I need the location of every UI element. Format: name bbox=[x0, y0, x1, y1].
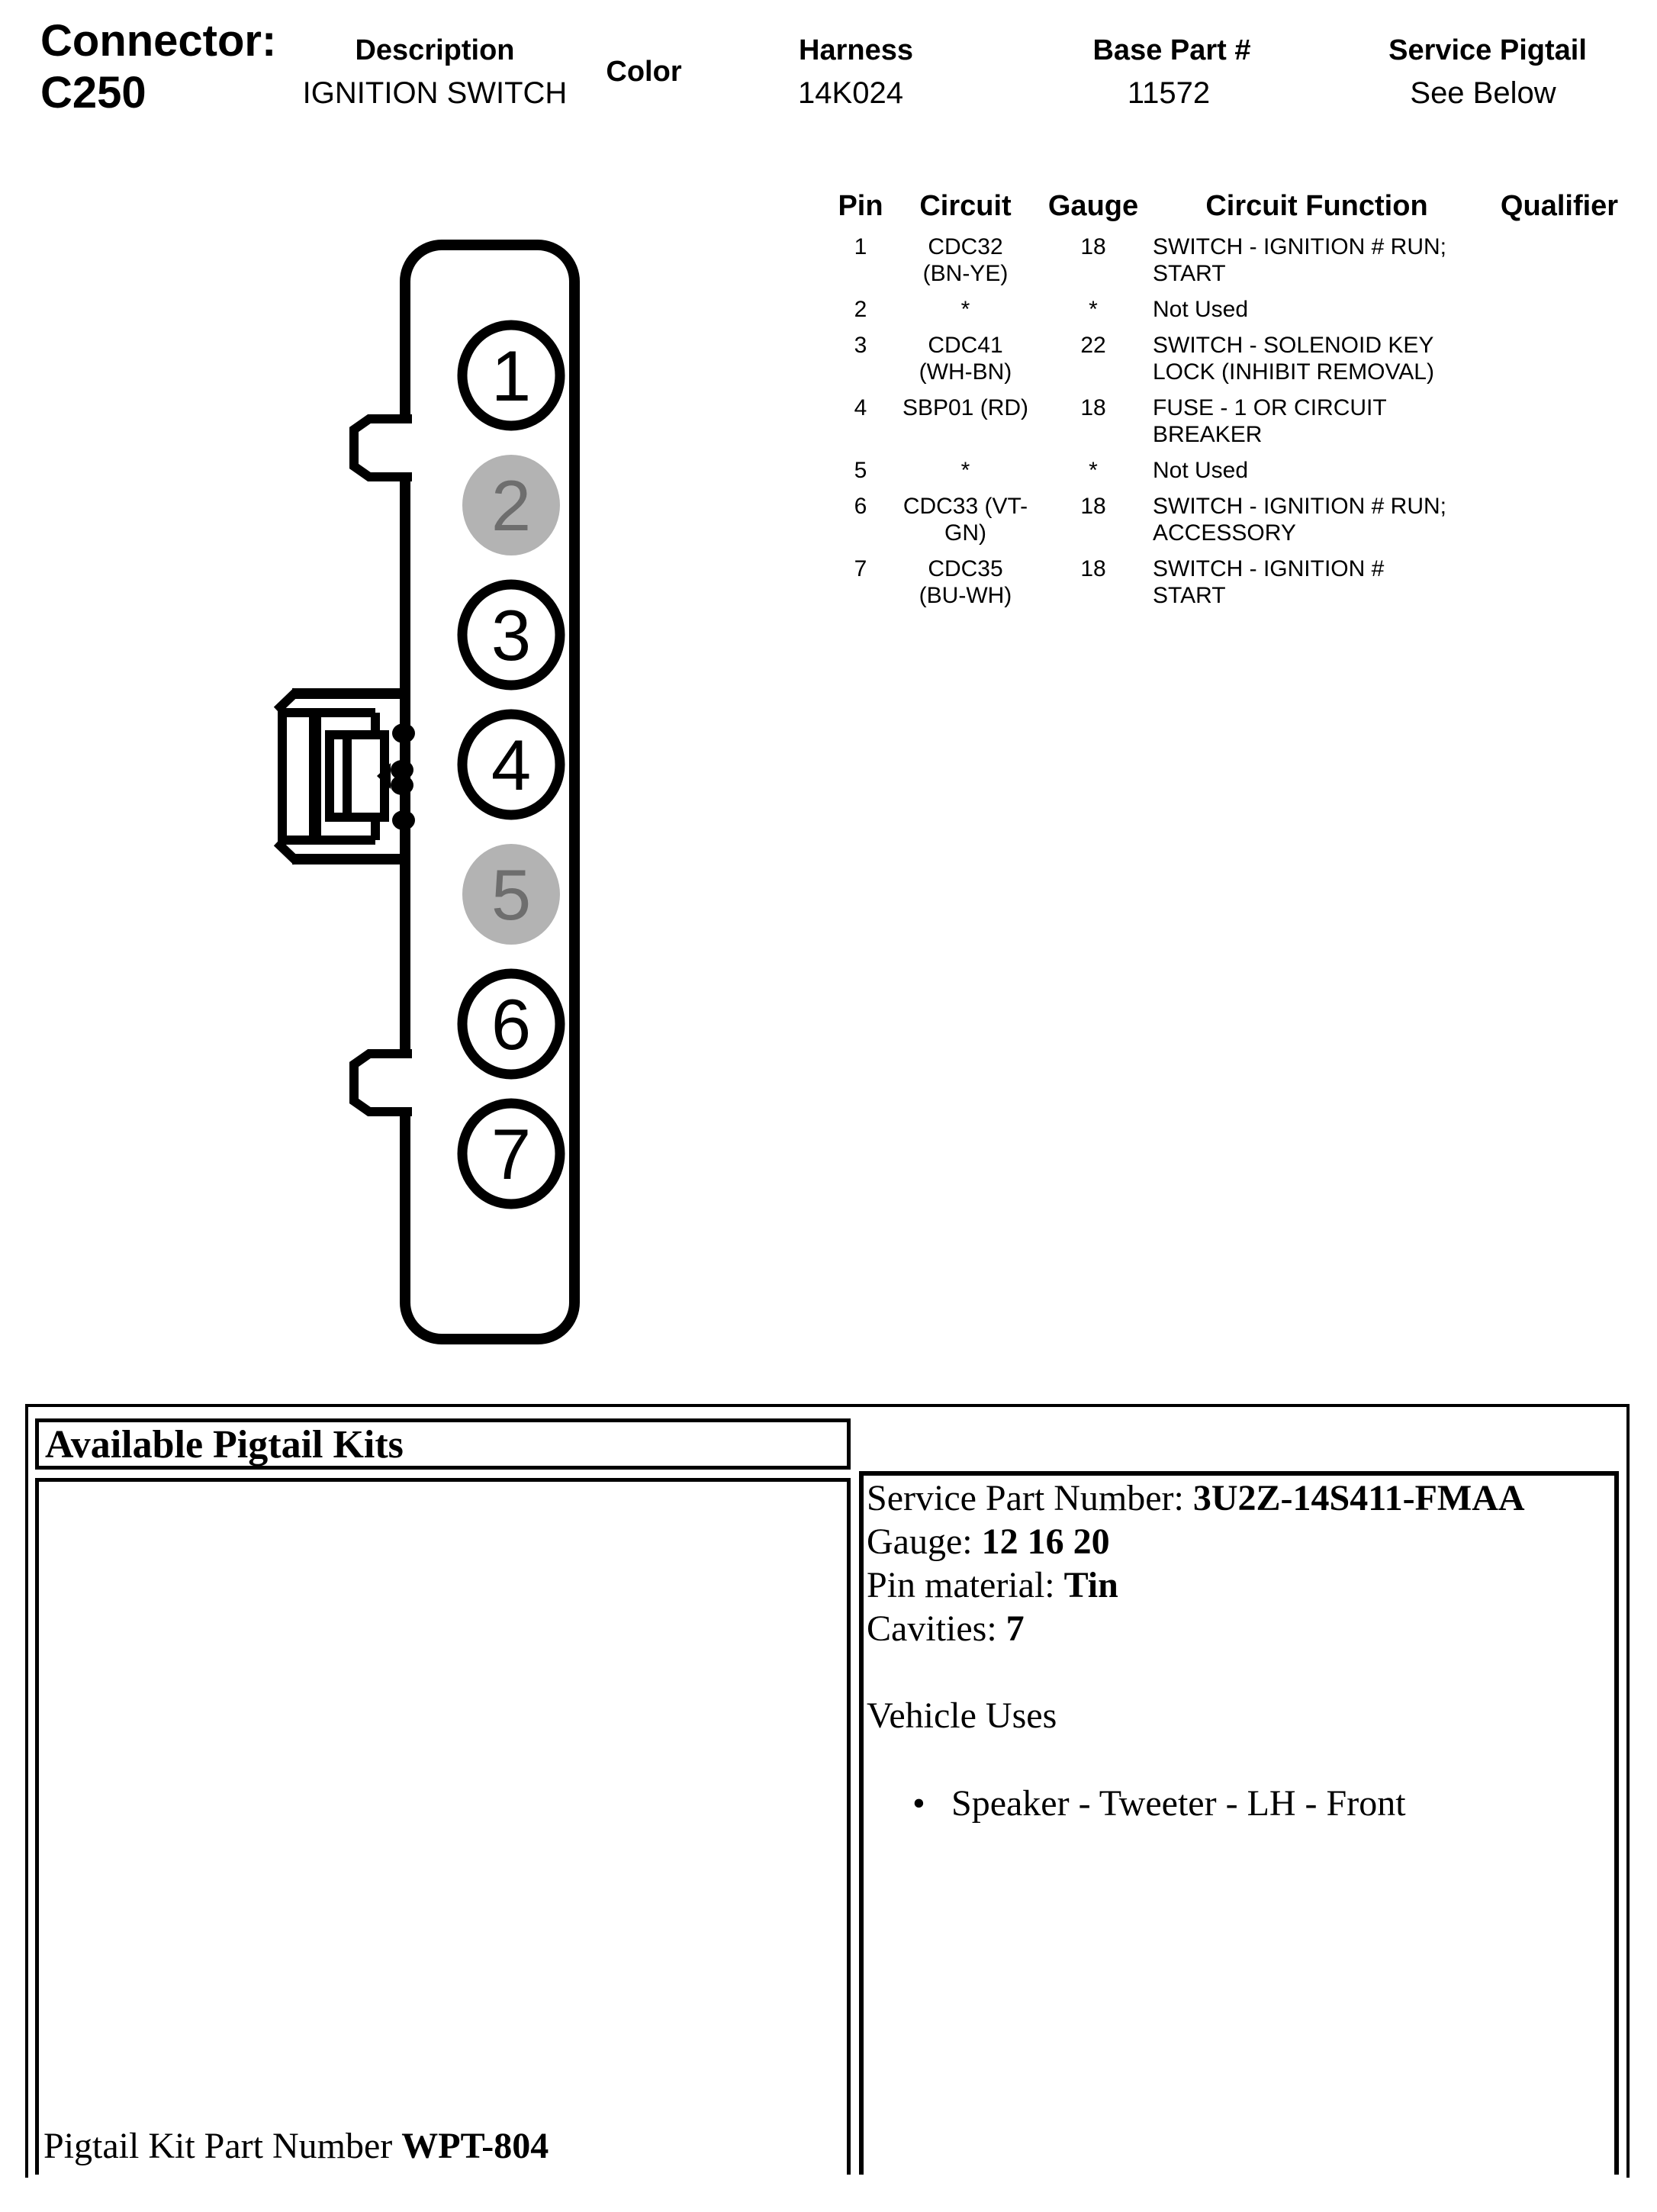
bullet-icon: • bbox=[912, 1782, 925, 1825]
service-part-details: Service Part Number: 3U2Z-14S411-FMAAGau… bbox=[867, 1476, 1614, 1650]
pin-table-header-row: PinCircuitGaugeCircuit FunctionQualifier bbox=[838, 189, 1624, 223]
qualifier-cell bbox=[1495, 296, 1624, 323]
service-detail-label: Pin material: bbox=[867, 1565, 1064, 1605]
circuit-function-cell: SWITCH - SOLENOID KEY LOCK (INHIBIT REMO… bbox=[1139, 332, 1495, 385]
pin-table-row: 1CDC32 (BN-YE)18SWITCH - IGNITION # RUN;… bbox=[838, 233, 1624, 287]
pin-cavity-3: 3 bbox=[462, 584, 560, 685]
service-detail-line: Pin material: Tin bbox=[867, 1563, 1614, 1607]
vehicle-use-text: Speaker - Tweeter - LH - Front bbox=[951, 1783, 1406, 1824]
circuit-function-cell: SWITCH - IGNITION # START bbox=[1139, 555, 1495, 609]
gauge-cell: * bbox=[1047, 457, 1139, 484]
header-col-label: Service Pigtail bbox=[1388, 34, 1587, 67]
pin-cavity-2: 2 bbox=[462, 455, 560, 555]
pin-table-body: 1CDC32 (BN-YE)18SWITCH - IGNITION # RUN;… bbox=[838, 233, 1624, 618]
circuit-cell: CDC35 (BU-WH) bbox=[883, 555, 1047, 609]
header-col-value: 14K024 bbox=[798, 76, 903, 111]
pin-cell: 6 bbox=[838, 493, 883, 546]
bracket-bump bbox=[392, 723, 415, 743]
latch-tab-bottom bbox=[354, 1054, 412, 1112]
circuit-function-cell: SWITCH - IGNITION # RUN; ACCESSORY bbox=[1139, 493, 1495, 546]
service-detail-line: Service Part Number: 3U2Z-14S411-FMAA bbox=[867, 1476, 1614, 1520]
qualifier-cell bbox=[1495, 457, 1624, 484]
pin-cell: 7 bbox=[838, 555, 883, 609]
gauge-cell: 18 bbox=[1047, 493, 1139, 546]
qualifier-cell bbox=[1495, 332, 1624, 385]
pin-number: 4 bbox=[491, 725, 531, 805]
circuit-cell: CDC41 (WH-BN) bbox=[883, 332, 1047, 385]
pin-cell: 5 bbox=[838, 457, 883, 484]
circuit-cell: * bbox=[883, 457, 1047, 484]
circuit-function-cell: SWITCH - IGNITION # RUN; START bbox=[1139, 233, 1495, 287]
pin-table-row: 2**Not Used bbox=[838, 296, 1624, 323]
header-col-label: Description bbox=[355, 34, 514, 67]
pigtail-kits-header-box: Available Pigtail Kits bbox=[35, 1418, 851, 1470]
pin-cavity-6: 6 bbox=[462, 974, 560, 1074]
vehicle-uses-title: Vehicle Uses bbox=[867, 1694, 1614, 1737]
pin-cavity-5: 5 bbox=[462, 844, 560, 945]
connector-label: Connector: bbox=[40, 15, 276, 67]
gauge-cell: 22 bbox=[1047, 332, 1139, 385]
header-col-value: See Below bbox=[1410, 76, 1556, 111]
pin-table-row: 7CDC35 (BU-WH)18SWITCH - IGNITION # STAR… bbox=[838, 555, 1624, 609]
circuit-function-cell: FUSE - 1 OR CIRCUIT BREAKER bbox=[1139, 394, 1495, 448]
service-detail-line: Cavities: 7 bbox=[867, 1607, 1614, 1650]
gauge-cell: 18 bbox=[1047, 555, 1139, 609]
connector-id: C250 bbox=[40, 67, 276, 119]
connector-title: Connector: C250 bbox=[40, 15, 276, 119]
qualifier-cell bbox=[1495, 555, 1624, 609]
gauge-cell: * bbox=[1047, 296, 1139, 323]
pin-number: 6 bbox=[491, 984, 531, 1064]
pin-cell: 1 bbox=[838, 233, 883, 287]
pin-table-header: Pin bbox=[838, 189, 883, 223]
qualifier-cell bbox=[1495, 493, 1624, 546]
pin-cavity-1: 1 bbox=[462, 325, 560, 426]
pin-table-header: Circuit Function bbox=[1139, 189, 1495, 223]
service-detail-value: Tin bbox=[1064, 1565, 1118, 1605]
gauge-cell: 18 bbox=[1047, 233, 1139, 287]
circuit-cell: * bbox=[883, 296, 1047, 323]
pigtail-kit-part-number: Pigtail Kit Part Number WPT-804 bbox=[43, 2124, 549, 2168]
pin-number: 2 bbox=[491, 465, 531, 546]
connector-diagram: 1234567 bbox=[259, 206, 618, 1412]
header-col-label: Color bbox=[606, 56, 681, 89]
gauge-cell: 18 bbox=[1047, 394, 1139, 448]
qualifier-cell bbox=[1495, 394, 1624, 448]
service-detail-value: 12 16 20 bbox=[982, 1521, 1110, 1562]
pin-table-row: 5**Not Used bbox=[838, 457, 1624, 484]
pin-cell: 4 bbox=[838, 394, 883, 448]
header-col-value: 11572 bbox=[1128, 76, 1210, 111]
pin-table-header: Gauge bbox=[1047, 189, 1139, 223]
header-col-label: Harness bbox=[799, 34, 913, 67]
header-col-label: Base Part # bbox=[1092, 34, 1250, 67]
qualifier-cell bbox=[1495, 233, 1624, 287]
pin-number: 7 bbox=[491, 1114, 531, 1194]
circuit-cell: SBP01 (RD) bbox=[883, 394, 1047, 448]
service-detail-label: Gauge: bbox=[867, 1521, 982, 1562]
bracket-bump bbox=[391, 775, 413, 795]
service-part-panel: Service Part Number: 3U2Z-14S411-FMAAGau… bbox=[859, 1471, 1619, 2175]
service-detail-line: Gauge: 12 16 20 bbox=[867, 1520, 1614, 1563]
circuit-cell: CDC33 (VT- GN) bbox=[883, 493, 1047, 546]
connector-spec-sheet: Connector: C250 DescriptionIGNITION SWIT… bbox=[0, 0, 1657, 2212]
service-detail-value: 3U2Z-14S411-FMAA bbox=[1193, 1478, 1525, 1518]
circuit-cell: CDC32 (BN-YE) bbox=[883, 233, 1047, 287]
pin-number: 1 bbox=[491, 336, 531, 416]
pin-table-header: Circuit bbox=[883, 189, 1047, 223]
pin-number: 5 bbox=[491, 855, 531, 935]
pin-cavity-4: 4 bbox=[462, 714, 560, 815]
pin-table-row: 3CDC41 (WH-BN)22SWITCH - SOLENOID KEY LO… bbox=[838, 332, 1624, 385]
latch-tab-top bbox=[354, 419, 412, 477]
bracket-bump bbox=[392, 810, 415, 830]
service-detail-label: Service Part Number: bbox=[867, 1478, 1193, 1518]
circuit-function-cell: Not Used bbox=[1139, 457, 1495, 484]
pigtail-kit-panel: Pigtail Kit Part Number WPT-804 bbox=[35, 1478, 851, 2175]
header-col-value: IGNITION SWITCH bbox=[303, 76, 568, 111]
pin-cell: 2 bbox=[838, 296, 883, 323]
pin-table-row: 6CDC33 (VT- GN)18SWITCH - IGNITION # RUN… bbox=[838, 493, 1624, 546]
circuit-function-cell: Not Used bbox=[1139, 296, 1495, 323]
vehicle-use-item: •Speaker - Tweeter - LH - Front bbox=[867, 1782, 1614, 1825]
vehicle-uses-list: •Speaker - Tweeter - LH - Front bbox=[867, 1782, 1614, 1825]
service-detail-value: 7 bbox=[1006, 1608, 1025, 1649]
service-detail-label: Cavities: bbox=[867, 1608, 1006, 1649]
pin-cavity-7: 7 bbox=[462, 1103, 560, 1204]
pin-cell: 3 bbox=[838, 332, 883, 385]
kit-part-number-label: Pigtail Kit Part Number bbox=[43, 2126, 392, 2166]
pin-table-header: Qualifier bbox=[1495, 189, 1624, 223]
pin-table-row: 4SBP01 (RD)18FUSE - 1 OR CIRCUIT BREAKER bbox=[838, 394, 1624, 448]
mounting-bracket bbox=[277, 691, 405, 861]
pin-number: 3 bbox=[491, 595, 531, 675]
pigtail-kits-title: Available Pigtail Kits bbox=[39, 1422, 847, 1467]
kit-part-number-value: WPT-804 bbox=[401, 2126, 549, 2166]
